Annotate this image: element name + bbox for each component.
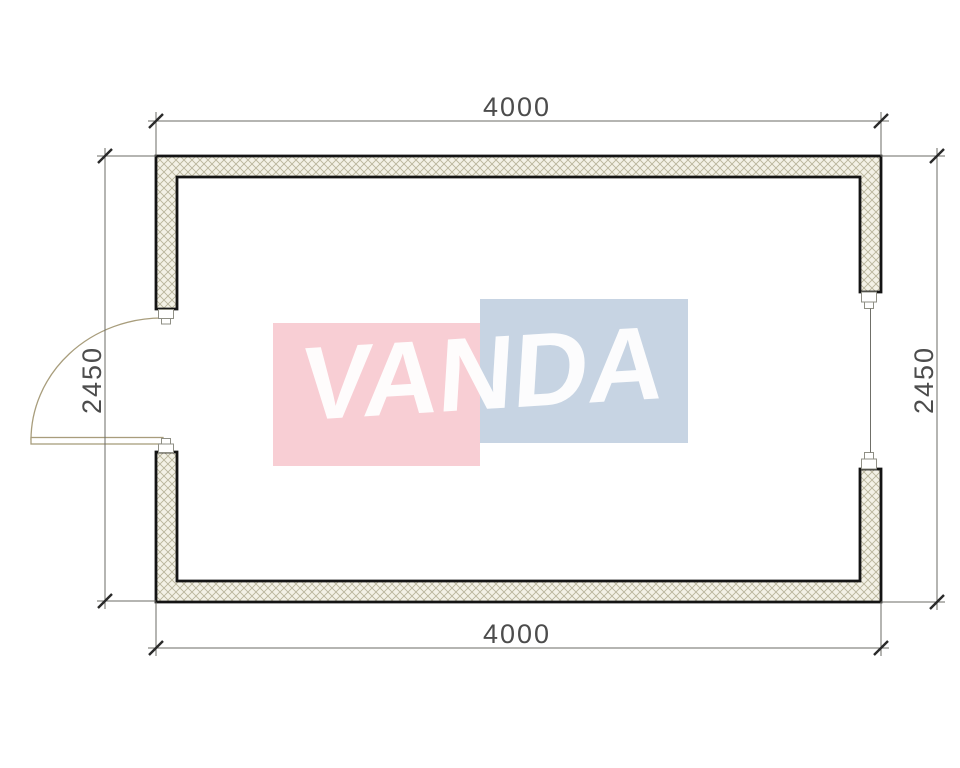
walls xyxy=(156,156,881,602)
window-frame-top-stop xyxy=(865,302,874,309)
dimension-right-label: 2450 xyxy=(909,346,939,414)
door-frame-top xyxy=(159,310,174,319)
door-frame-top-stop xyxy=(162,319,171,325)
door-leaf xyxy=(31,438,163,445)
floor-plan-drawing: 4000 4000 2450 2450 xyxy=(0,0,960,768)
wall-lower-ring xyxy=(156,452,881,602)
window-frame-top xyxy=(862,292,877,302)
dimension-bottom: 4000 xyxy=(148,602,889,656)
dimension-top: 4000 xyxy=(148,92,889,156)
window-frame-bottom-stop xyxy=(865,453,874,460)
dimension-right: 2450 xyxy=(881,148,945,610)
window-frame-bottom xyxy=(862,459,877,469)
door-frame-bottom xyxy=(159,444,174,453)
door-frame-bottom-stop xyxy=(162,439,171,445)
dimension-top-label: 4000 xyxy=(483,92,551,122)
dimension-bottom-label: 4000 xyxy=(483,619,551,649)
floor-plan-canvas: VANDA xyxy=(0,0,960,768)
window xyxy=(862,292,877,469)
dimension-left-label: 2450 xyxy=(77,346,107,414)
wall-upper-ring xyxy=(156,156,881,309)
dimension-left: 2450 xyxy=(77,148,156,609)
